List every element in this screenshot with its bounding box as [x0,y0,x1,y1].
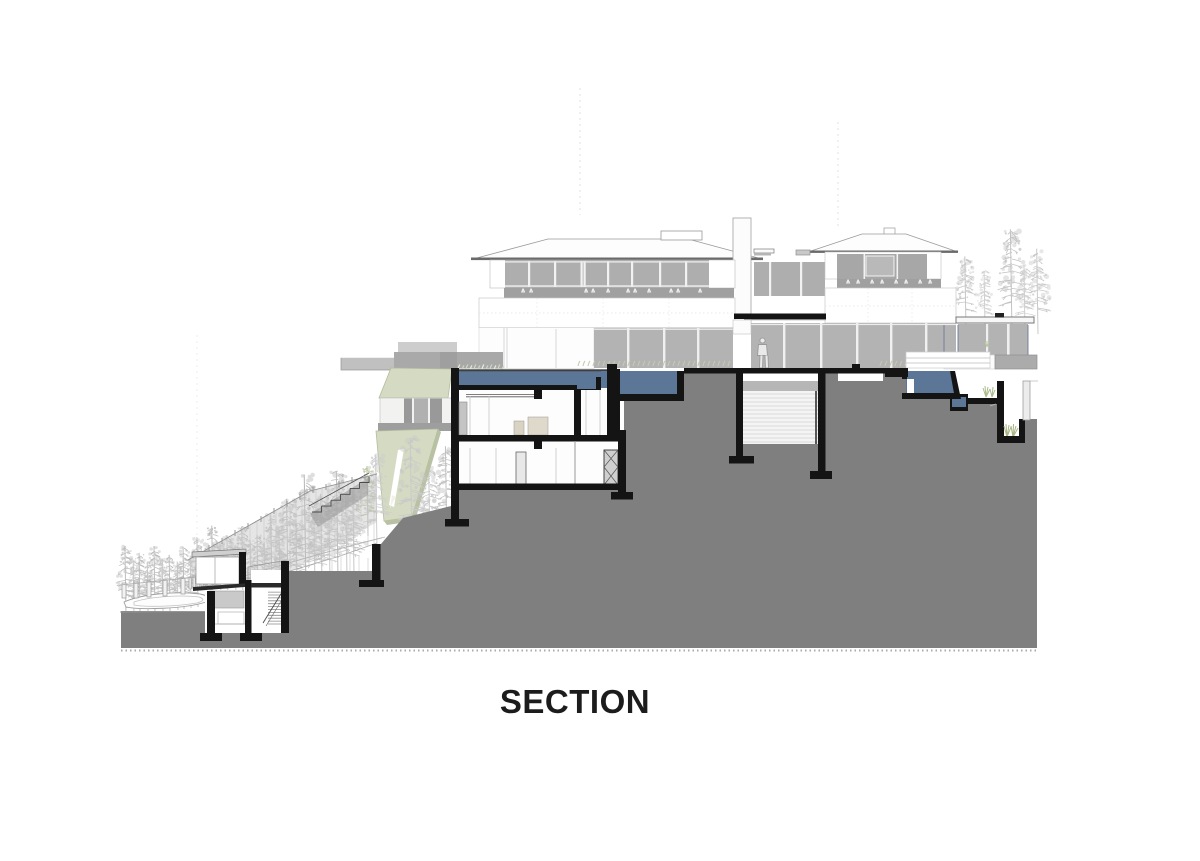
svg-text:SECTION: SECTION [500,683,650,720]
